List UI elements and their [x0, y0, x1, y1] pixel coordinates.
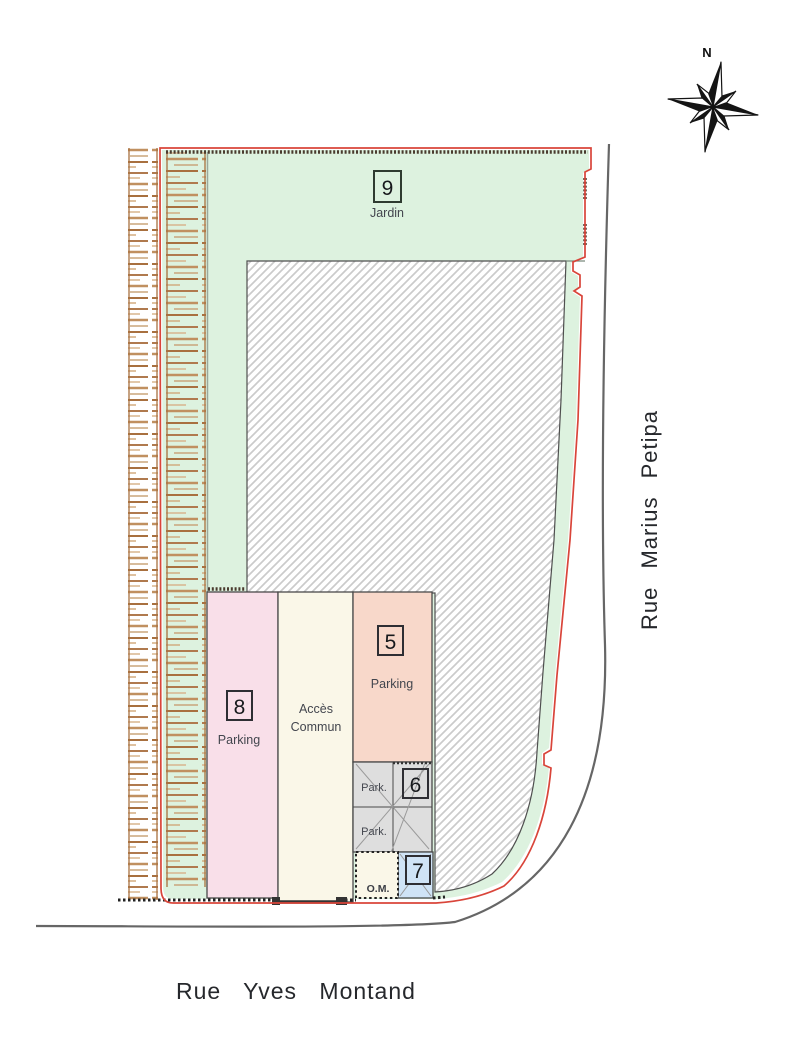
- site-plan: Rue Yves Montand Rue Marius Petipa N: [0, 0, 800, 1054]
- svg-text:7: 7: [412, 860, 424, 883]
- svg-text:Parking: Parking: [371, 677, 413, 691]
- svg-text:Park.: Park.: [361, 782, 387, 794]
- svg-text:8: 8: [234, 696, 246, 719]
- svg-text:Jardin: Jardin: [370, 206, 404, 220]
- street-label-rue-marius-petipa: Rue Marius Petipa: [637, 410, 662, 630]
- lot-7-label: 7: [406, 856, 430, 884]
- compass-rose: N: [660, 45, 767, 160]
- svg-text:Parking: Parking: [218, 733, 260, 747]
- svg-text:Park.: Park.: [361, 826, 387, 838]
- hedge-strip-inner: [166, 151, 208, 887]
- acces-commun-area: [278, 592, 353, 902]
- north-label: N: [702, 45, 711, 60]
- svg-text:9: 9: [382, 177, 394, 200]
- svg-text:Accès: Accès: [299, 702, 333, 716]
- street-label-rue-yves-montand: Rue Yves Montand: [176, 978, 416, 1004]
- hedge-strip-outer: [128, 148, 158, 900]
- om-label: O.M.: [367, 883, 390, 895]
- svg-text:6: 6: [410, 774, 422, 797]
- svg-text:Commun: Commun: [291, 720, 342, 734]
- svg-text:5: 5: [385, 631, 397, 654]
